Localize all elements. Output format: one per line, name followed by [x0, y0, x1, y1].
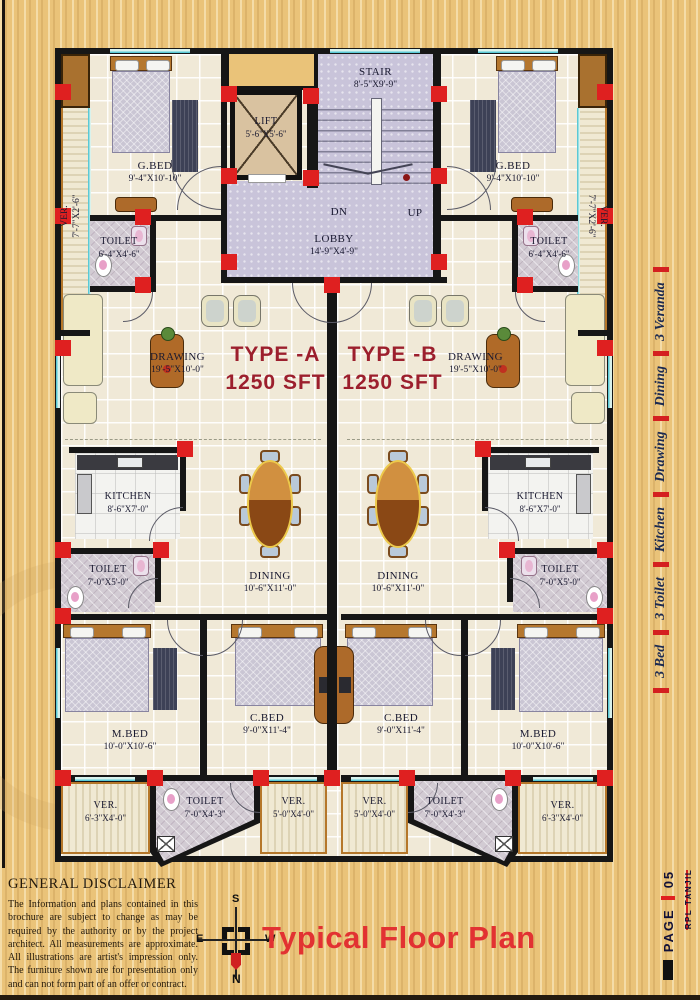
room-name: TOILET: [518, 236, 580, 248]
column-marker: [135, 209, 151, 225]
room-name: VER.: [596, 171, 608, 261]
stair-label: STAIR 8'-5"X9'-9": [318, 66, 433, 92]
dining-label-right: DINING 10'-6"X11'-0": [343, 570, 453, 596]
kitchen-label-left: KITCHEN 8'-6"X7'-0": [83, 491, 173, 515]
room-dims: 9'-0"X11'-4": [349, 726, 453, 737]
room-dims: 5'-0"X4'-0": [341, 809, 408, 820]
page-tab-bar: [663, 960, 673, 980]
room-name: M.BED: [80, 728, 180, 741]
window-ver-bli: [267, 777, 317, 781]
pillow: [524, 627, 548, 638]
floor-plan: STAIR 8'-5"X9'-9" LIFT 5'-6"X5'-6" DN UP…: [55, 48, 613, 868]
ver-out-label-right: VER. 6'-3"X4'-0": [518, 800, 607, 824]
ver-side-label-right: VER. 7'-7"X2'-6": [580, 171, 608, 261]
dining-table: [375, 460, 421, 548]
column-marker: [147, 770, 163, 786]
feature-strip: 3 Bed 3 Toilet Kitchen Drawing Dining 3 …: [646, 250, 676, 710]
ver-in-label-left: VER. 5'-0"X4'-0": [260, 796, 327, 820]
wall-kitchen-right-t: [482, 447, 599, 453]
kitchen-right-sink: [525, 457, 551, 468]
room-name: G.BED: [458, 160, 568, 173]
wall-beds-top-right: [341, 614, 607, 620]
gbed-left-mattress: [112, 71, 170, 153]
column-marker: [55, 340, 71, 356]
flower-vase: [497, 327, 511, 341]
type-area: 1250 SFT: [218, 369, 333, 397]
column-marker: [517, 277, 533, 293]
dining-label-left: DINING 10'-6"X11'-0": [215, 570, 325, 596]
toilet-icon: [491, 788, 508, 811]
column-marker: [324, 770, 340, 786]
page-number: 05: [661, 870, 676, 888]
room-name: VER.: [260, 796, 327, 808]
column-marker: [177, 441, 193, 457]
compass-north: N: [232, 972, 241, 986]
feature-item: 3 Bed: [653, 645, 669, 678]
feature-item: Dining: [653, 366, 669, 406]
page-label: PAGE: [661, 908, 676, 952]
pillow: [146, 60, 170, 71]
pillow: [501, 60, 525, 71]
wall-outer-bottom: [55, 856, 613, 862]
room-dims: 5'-6"X5'-6": [230, 129, 302, 140]
room-name: DINING: [215, 570, 325, 583]
ver-in-label-right: VER. 5'-0"X4'-0": [341, 796, 408, 820]
type-name: TYPE -A: [218, 341, 333, 369]
sofa-left-chair: [63, 392, 97, 424]
column-marker: [135, 277, 151, 293]
room-name: KITCHEN: [83, 491, 173, 503]
window-drawing-right: [608, 353, 612, 408]
mbed-label-left: M.BED 10'-0"X10'-6": [80, 728, 180, 754]
up-text: UP: [395, 207, 435, 220]
room-dims: 10'-6"X11'-0": [215, 584, 325, 595]
type-b-label: TYPE -B 1250 SFT: [335, 341, 450, 398]
mbed-label-right: M.BED 10'-0"X10'-6": [488, 728, 588, 754]
room-name: KITCHEN: [495, 491, 585, 503]
lift-door: [248, 174, 286, 183]
wall-core-right: [433, 48, 441, 283]
feature-item: 3 Veranda: [653, 282, 669, 341]
gbed-label-left: G.BED 9'-4"X10'-10": [100, 160, 210, 186]
pillow: [115, 60, 139, 71]
page-title: Typical Floor Plan: [262, 920, 536, 956]
gbed-label-right: G.BED 9'-4"X10'-10": [458, 160, 568, 186]
column-marker: [597, 608, 613, 624]
armchair-right-1: [441, 295, 469, 327]
feature-item: Drawing: [653, 431, 669, 482]
dn-label: DN: [319, 206, 359, 219]
toilet-icon: [67, 586, 84, 609]
room-name: C.BED: [215, 712, 319, 725]
flower-vase: [161, 327, 175, 341]
mbed-left-rug: [153, 648, 177, 710]
column-marker: [221, 168, 237, 184]
room-name: TOILET: [61, 564, 155, 576]
room-name: M.BED: [488, 728, 588, 741]
column-marker: [303, 170, 319, 186]
room-dims: 9'-0"X11'-4": [215, 726, 319, 737]
room-dims: 8'-6"X7'-0": [495, 504, 585, 515]
lobby-floor: [227, 181, 441, 277]
cbed-right-headboard: [345, 624, 437, 638]
gbed-right-mattress: [498, 71, 556, 153]
window-ver-bl: [75, 777, 135, 781]
feature-item: Kitchen: [653, 507, 669, 552]
room-dims: 10'-0"X10'-6": [488, 742, 588, 753]
toilet-bot-label-right: TOILET 7'-0"X4'-3": [405, 796, 485, 820]
guide-dash-left: [65, 439, 321, 440]
room-name: G.BED: [100, 160, 210, 173]
armchair-left-1: [201, 295, 229, 327]
type-a-label: TYPE -A 1250 SFT: [218, 341, 333, 398]
wall-verleft-bottom: [61, 330, 90, 336]
page-tab: PAGE 05: [657, 860, 679, 990]
dining-set-right: [367, 450, 429, 558]
compass-east: E: [196, 933, 203, 945]
column-marker: [597, 84, 613, 100]
column-marker: [153, 542, 169, 558]
mbed-right-mattress: [519, 638, 603, 712]
ver-side-label-left: VER. 7'-7"X2'-6": [60, 171, 88, 261]
feature-separator: [653, 267, 669, 272]
room-dims: 9'-4"X10'-10": [458, 174, 568, 185]
column-marker: [597, 340, 613, 356]
toilet-top-label-left: TOILET 6'-4"X4'-6": [88, 236, 150, 260]
cbed-right-mattress: [347, 638, 433, 706]
cbed-left-headboard: [231, 624, 323, 638]
compass-north-arrow: [231, 953, 241, 970]
window-ver-br: [533, 777, 593, 781]
kitchen-left-sink: [117, 457, 143, 468]
room-name: LOBBY: [234, 233, 434, 246]
room-dims: 6'-3"X4'-0": [61, 813, 150, 824]
column-marker: [505, 770, 521, 786]
window-mbed-left: [56, 648, 60, 718]
room-dims: 6'-3"X4'-0": [518, 813, 607, 824]
toilet-bot-label-left: TOILET 7'-0"X4'-3": [165, 796, 245, 820]
mbed-left-mattress: [65, 638, 149, 712]
window-mbed-right: [608, 648, 612, 718]
disclaimer-body: The Information and plans contained in t…: [8, 898, 198, 991]
brand-label: RPL TANJIL: [684, 854, 698, 944]
column-marker: [55, 770, 71, 786]
feature-item: 3 Toilet: [653, 577, 669, 620]
column-marker: [475, 441, 491, 457]
guide-dash-right: [347, 439, 603, 440]
column-marker: [431, 168, 447, 184]
feature-separator: [653, 688, 669, 693]
armchair-right-2: [409, 295, 437, 327]
brochure-page: STAIR 8'-5"X9'-9" LIFT 5'-6"X5'-6" DN UP…: [0, 0, 700, 1000]
room-name: STAIR: [318, 66, 433, 79]
mbed-right-headboard: [517, 624, 605, 638]
toilet-mid-label-right: TOILET 7'-0"X5'-0": [513, 564, 607, 588]
wall-gbed-right: [441, 215, 578, 221]
column-marker: [221, 86, 237, 102]
feature-separator: [653, 562, 669, 567]
pillow: [576, 627, 600, 638]
dining-table: [247, 460, 293, 548]
room-name: TOILET: [88, 236, 150, 248]
room-name: TOILET: [165, 796, 245, 808]
room-dims: 7'-0"X4'-3": [405, 809, 485, 820]
armchair-left-2: [233, 295, 261, 327]
room-dims: 7'-7"X2'-6": [72, 171, 84, 261]
wall-verright-bottom: [578, 330, 607, 336]
pillow: [122, 627, 146, 638]
column-marker: [517, 209, 533, 225]
wall-kitchen-left-t: [69, 447, 186, 453]
pillow: [352, 627, 376, 638]
mbed-left-headboard: [63, 624, 151, 638]
compass-south: S: [232, 893, 239, 905]
core-top-notch: [225, 48, 318, 90]
ver-out-label-left: VER. 6'-3"X4'-0": [61, 800, 150, 824]
room-dims: 9'-4"X10'-10": [100, 174, 210, 185]
room-dims: 7'-0"X5'-0": [61, 577, 155, 588]
page-separator: [661, 896, 675, 900]
room-dims: 8'-5"X9'-9": [318, 80, 433, 91]
wall-gbed-left: [90, 215, 227, 221]
cbed-label-right: C.BED 9'-0"X11'-4": [349, 712, 453, 738]
stair-marker-dot: [403, 174, 410, 181]
disclaimer-heading: GENERAL DISCLAIMER: [8, 876, 198, 893]
room-name: LIFT: [230, 116, 302, 128]
disclaimer: GENERAL DISCLAIMER The Information and p…: [8, 876, 198, 991]
room-dims: 14'-9"X4'-9": [234, 247, 434, 258]
room-dims: 19'-5"X10'-0": [125, 365, 230, 376]
toilet-top-label-right: TOILET 6'-4"X4'-6": [518, 236, 580, 260]
column-marker: [303, 88, 319, 104]
feature-separator: [653, 416, 669, 421]
toilet-mid-label-left: TOILET 7'-0"X5'-0": [61, 564, 155, 588]
monitor: [339, 677, 351, 693]
room-name: VER.: [61, 800, 150, 812]
column-marker: [597, 542, 613, 558]
dn-text: DN: [319, 206, 359, 219]
room-dims: 7'-0"X4'-3": [165, 809, 245, 820]
mbed-right-rug: [491, 648, 515, 710]
kitchen-label-right: KITCHEN 8'-6"X7'-0": [495, 491, 585, 515]
room-name: VER.: [341, 796, 408, 808]
column-marker: [55, 608, 71, 624]
column-marker: [55, 84, 71, 100]
room-name: DRAWING: [125, 351, 230, 364]
room-dims: 6'-4"X4'-6": [518, 249, 580, 260]
compass-bracket-tl: [222, 927, 234, 939]
window-gbed-right: [478, 49, 558, 53]
feature-separator: [653, 492, 669, 497]
lobby-label: LOBBY 14'-9"X4'-9": [234, 233, 434, 259]
room-name: VER.: [518, 800, 607, 812]
compass-bracket-tr: [238, 927, 250, 939]
pillow: [532, 60, 556, 71]
scan-edge-bottom: [0, 995, 700, 1000]
wall-beds-top-left: [61, 614, 327, 620]
wall-kitchen-left-r: [180, 453, 186, 511]
room-dims: 8'-6"X7'-0": [83, 504, 173, 515]
cbed-left-mattress: [235, 638, 321, 706]
room-name: TOILET: [513, 564, 607, 576]
feature-separator: [653, 351, 669, 356]
shower-tray: [495, 836, 513, 852]
room-name: C.BED: [349, 712, 453, 725]
gbed-right-headboard: [496, 56, 558, 71]
pillow: [70, 627, 94, 638]
window-gbed-left: [110, 49, 190, 53]
type-area: 1250 SFT: [335, 369, 450, 397]
room-dims: 7'-7"X2'-6": [584, 171, 596, 261]
column-marker: [499, 542, 515, 558]
window-ver-bri: [351, 777, 401, 781]
cbed-label-left: C.BED 9'-0"X11'-4": [215, 712, 319, 738]
wall-toilet-mid-left-t: [61, 548, 161, 554]
pillow: [294, 627, 318, 638]
room-dims: 6'-4"X4'-6": [88, 249, 150, 260]
type-name: TYPE -B: [335, 341, 450, 369]
shower-tray: [157, 836, 175, 852]
wall-core-left: [221, 48, 227, 283]
feature-separator: [653, 630, 669, 635]
window-stair: [330, 49, 420, 53]
column-marker: [55, 542, 71, 558]
window-drawing-left: [56, 353, 60, 408]
wall-toilet-mid-right-t: [507, 548, 607, 554]
column-marker: [431, 86, 447, 102]
drawing-label-left: DRAWING 19'-5"X10'-0": [125, 351, 230, 377]
lift-label: LIFT 5'-6"X5'-6": [230, 116, 302, 140]
gbed-left-headboard: [110, 56, 172, 71]
room-name: DINING: [343, 570, 453, 583]
toilet-icon: [586, 586, 603, 609]
dining-set-left: [239, 450, 301, 558]
room-dims: 5'-0"X4'-0": [260, 809, 327, 820]
room-name: VER.: [60, 171, 72, 261]
room-dims: 10'-0"X10'-6": [80, 742, 180, 753]
room-name: TOILET: [405, 796, 485, 808]
room-dims: 7'-0"X5'-0": [513, 577, 607, 588]
column-marker: [597, 770, 613, 786]
wall-kitchen-right-l: [482, 453, 488, 511]
sofa-right-chair: [571, 392, 605, 424]
up-label: UP: [395, 207, 435, 220]
room-dims: 10'-6"X11'-0": [343, 584, 453, 595]
